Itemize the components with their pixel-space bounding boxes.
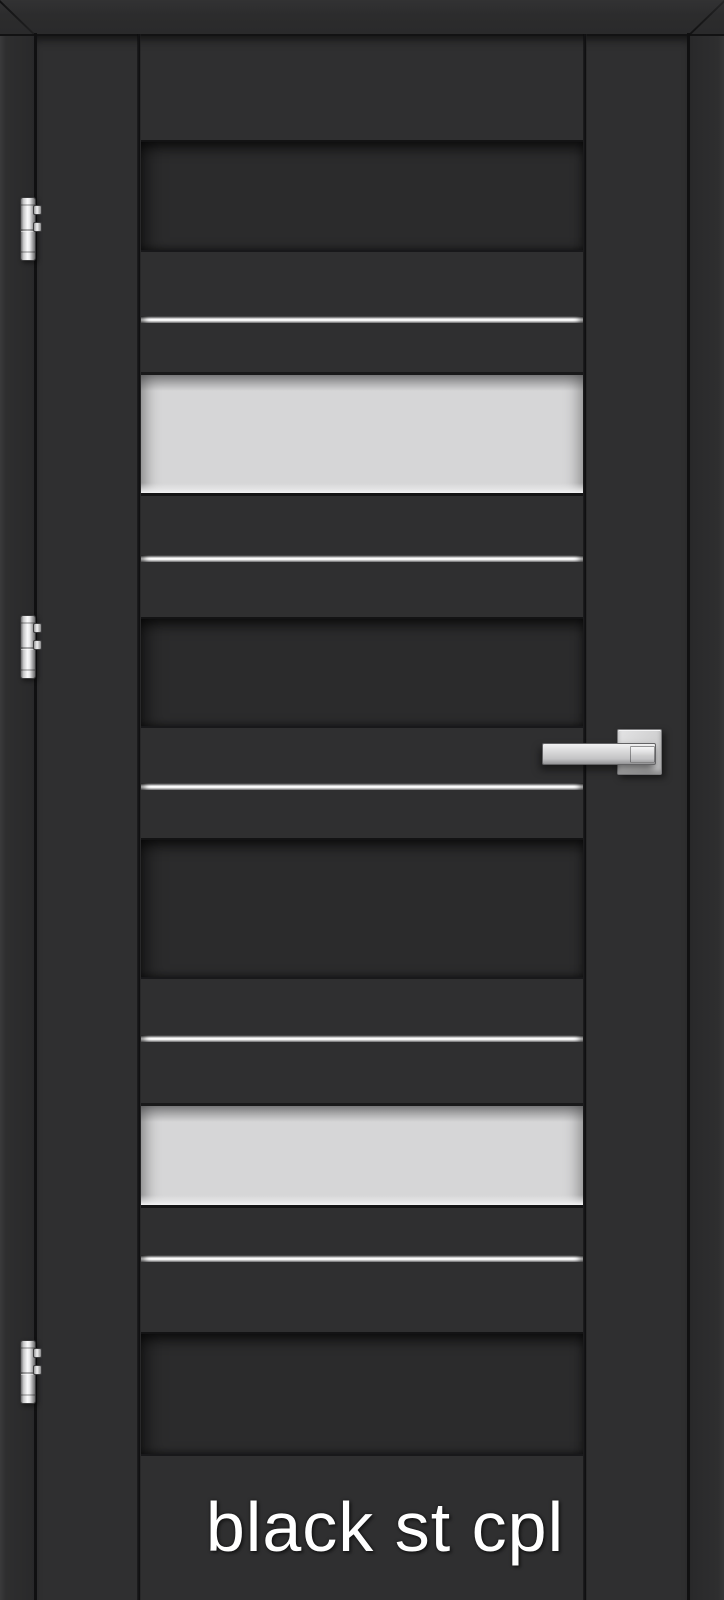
aluminum-strip bbox=[141, 555, 583, 562]
door-handle-neck bbox=[630, 746, 655, 763]
aluminum-strip bbox=[141, 1035, 583, 1042]
hinge-cap bbox=[21, 669, 35, 671]
aluminum-strip bbox=[141, 783, 583, 790]
aluminum-strip bbox=[141, 316, 583, 323]
frame-leaf-gap-right bbox=[687, 33, 690, 1600]
product-name-label: black st cpl bbox=[150, 1490, 620, 1564]
stile-groove-right bbox=[583, 34, 587, 1600]
door-frame-right-board bbox=[690, 0, 724, 1600]
door-hinge-middle bbox=[20, 615, 36, 679]
hinge-pin bbox=[33, 640, 42, 650]
glass-panel bbox=[141, 1103, 583, 1208]
recessed-panel bbox=[141, 838, 583, 979]
aluminum-strip bbox=[141, 1255, 583, 1262]
recessed-panel bbox=[141, 617, 583, 728]
hinge-pin bbox=[33, 205, 42, 215]
door-hinge-bottom bbox=[20, 1340, 36, 1404]
recessed-panel bbox=[141, 140, 583, 252]
hinge-cap bbox=[21, 1394, 35, 1396]
door-product-photo: black st cpl bbox=[0, 0, 724, 1600]
hinge-pin bbox=[33, 222, 42, 232]
hinge-pin bbox=[33, 623, 42, 633]
stile-groove-left bbox=[137, 34, 141, 1600]
recessed-panel bbox=[141, 1332, 583, 1456]
hinge-pin bbox=[33, 1348, 42, 1358]
hinge-cap bbox=[21, 251, 35, 253]
glass-panel bbox=[141, 372, 583, 496]
door-hinge-top bbox=[20, 197, 36, 261]
hinge-pin bbox=[33, 1365, 42, 1375]
door-frame-header bbox=[0, 0, 724, 36]
